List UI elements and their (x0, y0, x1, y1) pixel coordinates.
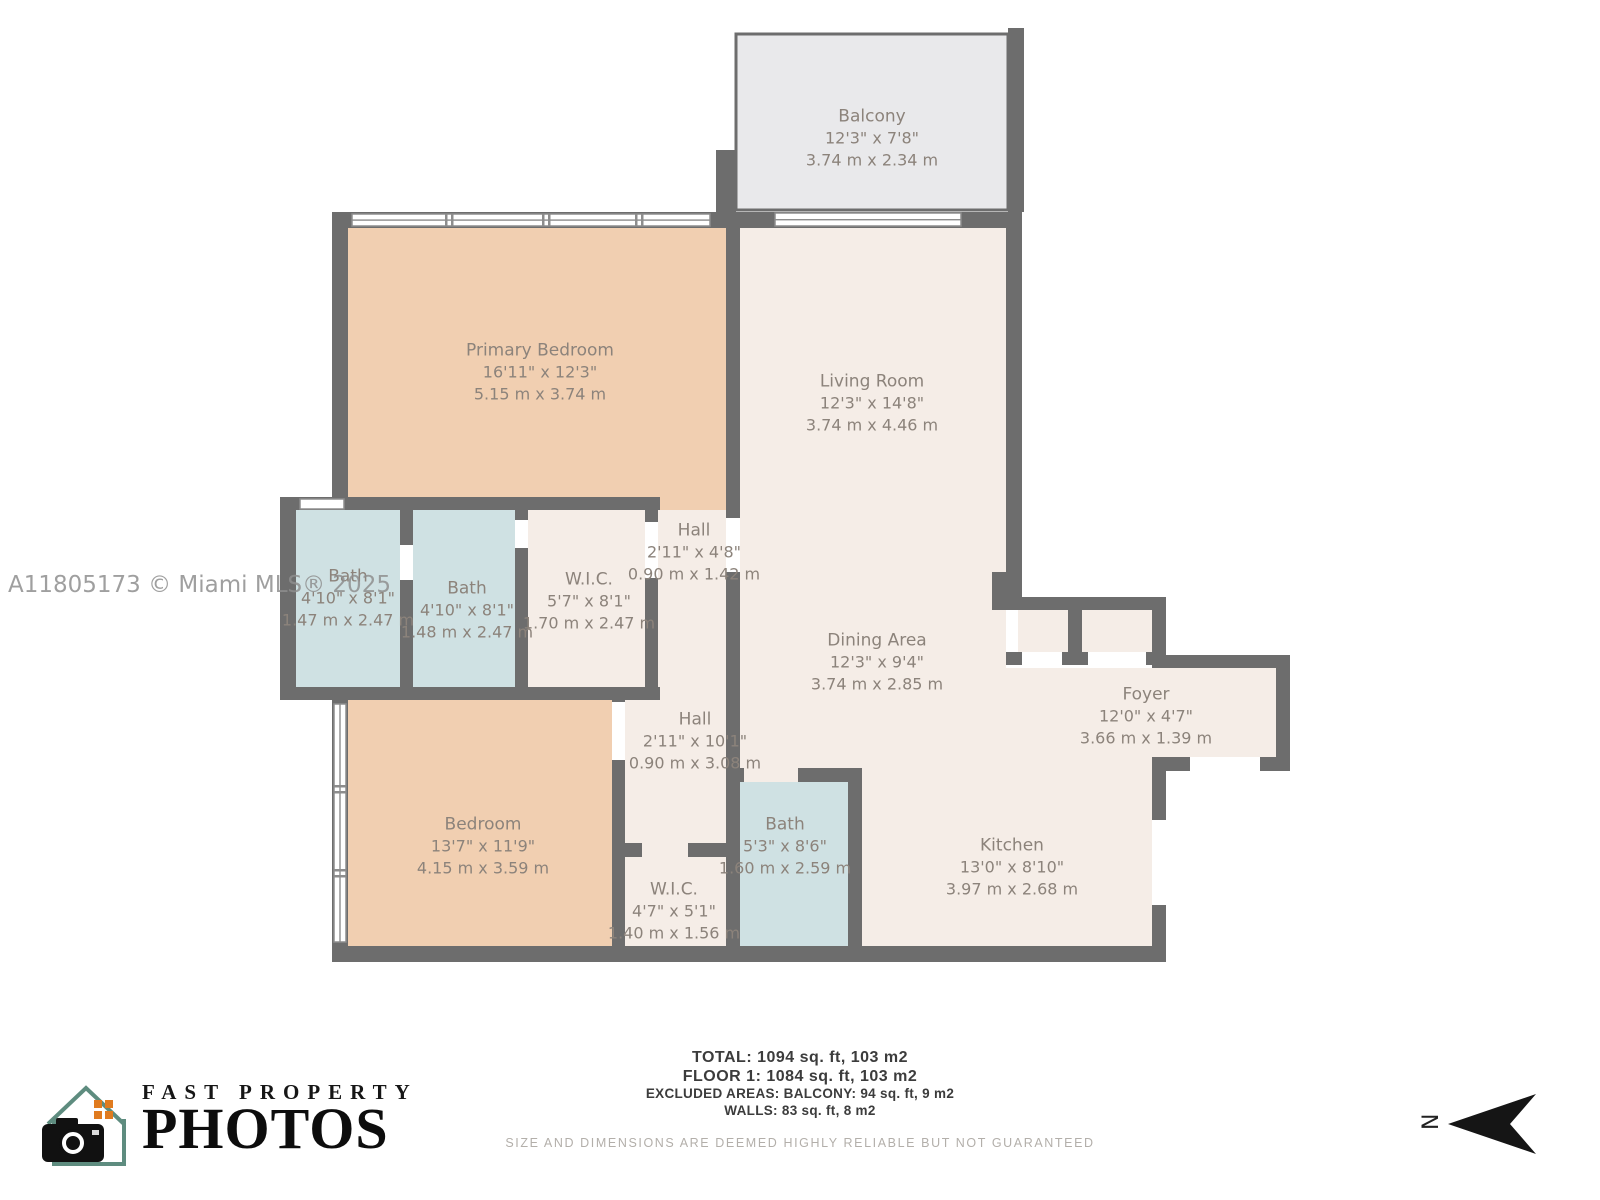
room-label-kitchen: Kitchen 13'0" x 8'10" 3.97 m x 2.68 m (946, 835, 1078, 900)
logo-camera (42, 1118, 104, 1162)
room-label-hall-upper: Hall 2'11" x 4'8" 0.90 m x 1.42 m (628, 520, 760, 585)
room-label-wic-2: W.I.C. 4'7" x 5'1" 1.40 m x 1.56 m (608, 879, 740, 944)
room-label-primary-bedroom: Primary Bedroom 16'11" x 12'3" 5.15 m x … (466, 340, 614, 405)
floor-plan-page: N Balcony 12'3" x 7'8" 3.74 m x 2.34 m P… (0, 0, 1600, 1200)
room-label-dining-area: Dining Area 12'3" x 9'4" 3.74 m x 2.85 m (811, 630, 943, 695)
logo-text: FAST PROPERTY PHOTOS (142, 1078, 418, 1153)
room-label-balcony: Balcony 12'3" x 7'8" 3.74 m x 2.34 m (806, 106, 938, 171)
floor-plan-drawing: N (0, 0, 1600, 1200)
room-label-living-room: Living Room 12'3" x 14'8" 3.74 m x 4.46 … (806, 371, 938, 436)
room-fill-closet-2 (1082, 610, 1152, 652)
room-label-bath-3: Bath 5'3" x 8'6" 1.60 m x 2.59 m (719, 814, 851, 879)
company-logo: FAST PROPERTY PHOTOS (40, 1078, 418, 1170)
room-label-bath-2: Bath 4'10" x 8'1" 1.48 m x 2.47 m (401, 578, 533, 643)
room-fills (296, 34, 1276, 946)
summary-total: TOTAL: 1094 sq. ft, 103 m2 (0, 1048, 1600, 1067)
house-camera-icon (40, 1078, 132, 1170)
room-label-hall-lower: Hall 2'11" x 10'1" 0.90 m x 3.08 m (629, 709, 761, 774)
window-bath (300, 499, 344, 509)
logo-line2: PHOTOS (142, 1105, 418, 1153)
room-fill-closet-1 (1018, 610, 1068, 652)
room-label-foyer: Foyer 12'0" x 4'7" 3.66 m x 1.39 m (1080, 684, 1212, 749)
mls-watermark: A11805173 © Miami MLS® 2025 (8, 572, 391, 598)
room-label-bedroom: Bedroom 13'7" x 11'9" 4.15 m x 3.59 m (417, 814, 549, 879)
